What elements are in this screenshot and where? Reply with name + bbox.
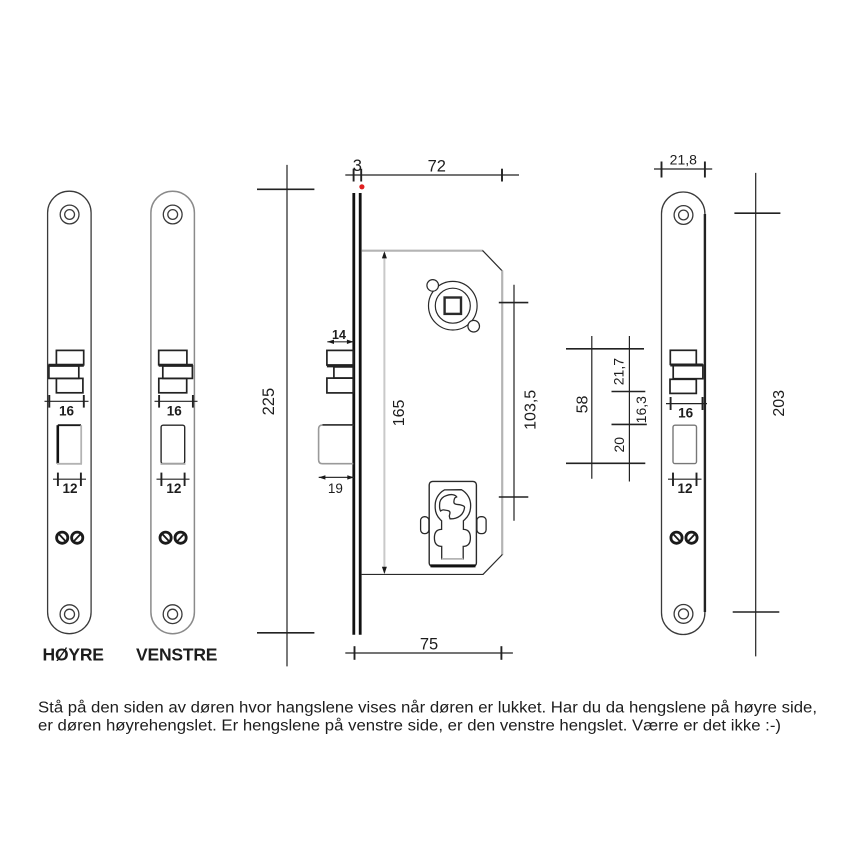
svg-text:103,5: 103,5 bbox=[523, 390, 540, 430]
svg-text:16,3: 16,3 bbox=[633, 396, 649, 423]
svg-text:VENSTRE: VENSTRE bbox=[136, 645, 217, 665]
svg-text:19: 19 bbox=[328, 481, 343, 496]
svg-text:16: 16 bbox=[167, 404, 183, 419]
svg-text:75: 75 bbox=[420, 635, 438, 653]
svg-text:16: 16 bbox=[678, 406, 694, 421]
svg-text:er døren høyrehengslet. Er hen: er døren høyrehengslet. Er hengslene på … bbox=[38, 718, 781, 735]
svg-text:21,8: 21,8 bbox=[670, 151, 697, 167]
svg-text:12: 12 bbox=[166, 481, 181, 496]
svg-text:14: 14 bbox=[332, 328, 346, 342]
svg-text:12: 12 bbox=[62, 481, 77, 496]
svg-text:3: 3 bbox=[353, 157, 362, 175]
svg-text:203: 203 bbox=[771, 390, 788, 417]
svg-text:20: 20 bbox=[611, 437, 627, 453]
svg-text:12: 12 bbox=[677, 481, 692, 496]
svg-text:72: 72 bbox=[428, 158, 446, 176]
svg-text:58: 58 bbox=[575, 396, 592, 414]
svg-text:Stå på den siden av døren hvor: Stå på den siden av døren hvor hangslene… bbox=[38, 700, 817, 717]
svg-text:HØYRE: HØYRE bbox=[43, 645, 104, 665]
svg-text:16: 16 bbox=[59, 404, 75, 419]
svg-text:165: 165 bbox=[391, 399, 408, 426]
svg-text:21,7: 21,7 bbox=[611, 358, 627, 385]
svg-text:225: 225 bbox=[260, 388, 278, 416]
